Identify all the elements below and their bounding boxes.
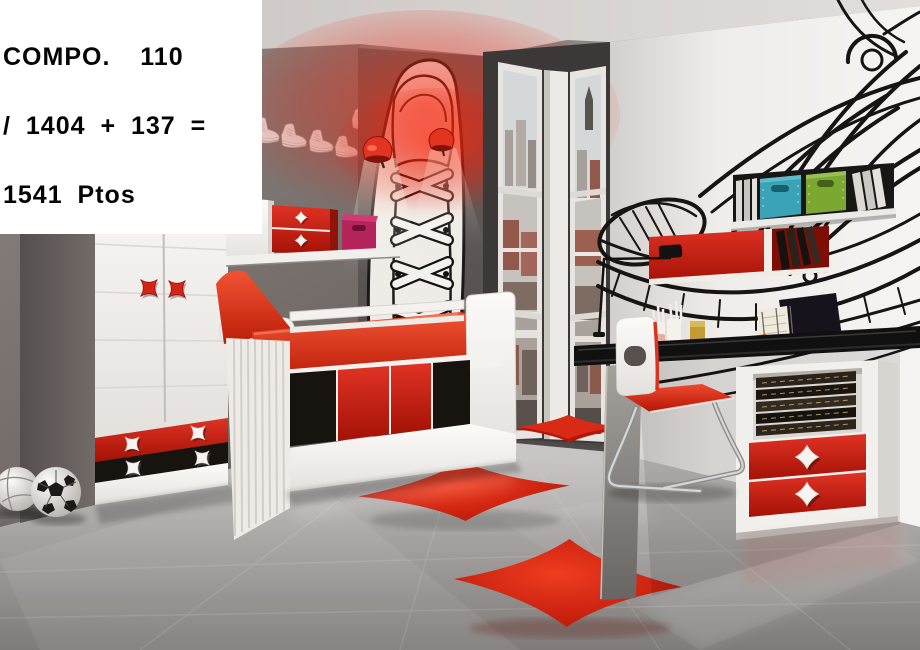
soccer-ball [31,467,81,517]
overlay-line-3: 1541 Ptos [3,184,254,207]
showroom-photo: COMPO. 110 / 1404 + 137 = 1541 Ptos [0,0,920,650]
underbed-front-red-2 [390,363,432,434]
cabinet-divider [764,229,772,275]
headboard-column [226,338,290,540]
white-books-left [736,178,757,227]
desk-pedestal [736,360,898,584]
price-overlay: COMPO. 110 / 1404 + 137 = 1541 Ptos [0,0,262,234]
city-view-2 [575,74,601,434]
overlay-line-2: / 1404 + 137 = [3,115,254,138]
white-books-right [852,168,886,212]
underbed-front-black-1 [283,370,337,447]
underbed-front-red-1 [337,366,390,441]
chair-back[interactable] [616,316,658,395]
window-right [570,66,606,442]
overlay-line-1: COMPO. 110 [3,46,254,69]
balls [0,467,86,525]
teal-storage-box [760,175,801,219]
underbed-front-black-2 [432,360,470,429]
pedestal-books [756,371,856,436]
green-storage-box [806,171,846,214]
shelf-drawer-unit[interactable] [272,205,338,255]
